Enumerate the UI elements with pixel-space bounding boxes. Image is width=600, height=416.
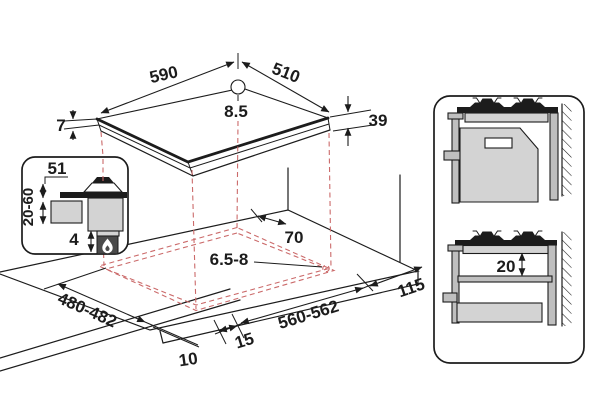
dim-15: 15: [233, 329, 257, 353]
section-above-oven: [444, 98, 572, 203]
dim-115: 115: [395, 274, 427, 301]
dim-inset-51: 51: [48, 159, 67, 178]
installation-diagram-page: 51 20-60 4 590 510 8.5 7 39 70 6.5-8: [0, 0, 600, 416]
dim-7: 7: [56, 116, 65, 135]
section-above-drawer: 20: [443, 231, 572, 326]
dim-510: 510: [269, 59, 302, 87]
hob-body-section: [88, 198, 123, 231]
dim-70: 70: [285, 228, 304, 247]
worktop-section: [51, 201, 82, 223]
dim-560-562: 560-562: [276, 297, 341, 333]
wall-hatch: [563, 232, 572, 326]
dim-590: 590: [148, 62, 180, 87]
dim-10: 10: [178, 349, 199, 370]
hob-glass-section: [60, 192, 127, 198]
side-section-panel: 20: [434, 96, 584, 363]
dim-20: 20: [497, 257, 516, 276]
dim-inset-20-60: 20-60: [20, 188, 37, 226]
dim-39: 39: [369, 111, 388, 130]
flame-icon: [97, 236, 118, 254]
detail-inset: 51 20-60 4: [20, 157, 128, 254]
shelf: [458, 276, 552, 282]
installation-diagram: 51 20-60 4 590 510 8.5 7 39 70 6.5-8: [0, 0, 600, 416]
drawer: [457, 303, 542, 322]
dim-480-482: 480-482: [55, 289, 120, 332]
dim-inset-4: 4: [69, 230, 79, 249]
rear-wall: [288, 168, 400, 262]
oven-window: [485, 138, 512, 148]
knob-circle: [231, 80, 245, 94]
wall-hatch: [563, 104, 572, 196]
dim-6-5-8: 6.5-8: [210, 250, 249, 269]
dim-8-5: 8.5: [224, 102, 248, 121]
